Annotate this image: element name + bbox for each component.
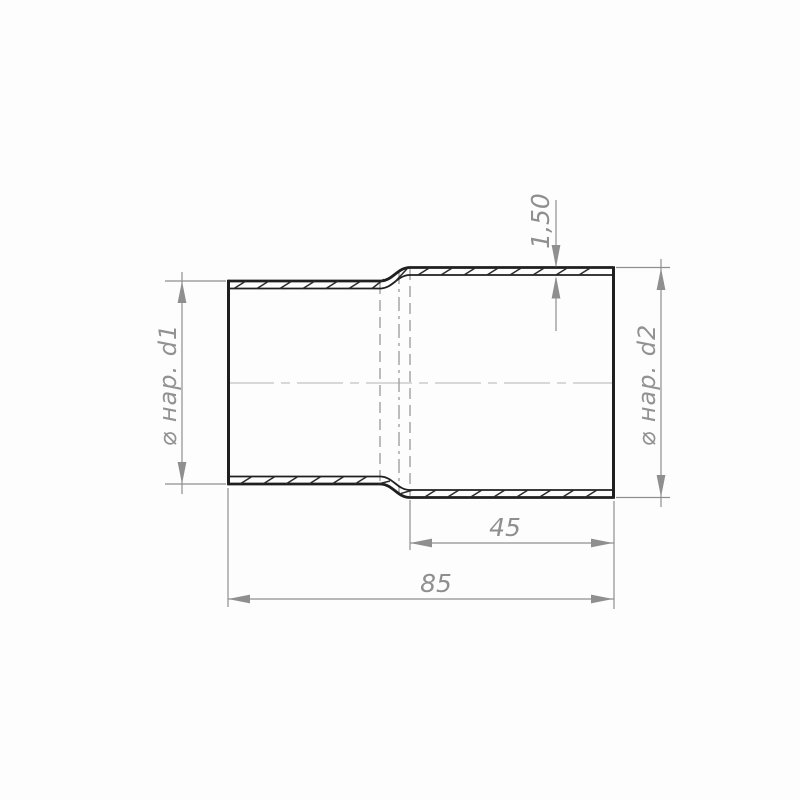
dimension-45: 45 bbox=[410, 500, 614, 550]
d2-label: ⌀ нар. d2 bbox=[633, 324, 661, 446]
d1-arrow-up-icon bbox=[178, 281, 187, 303]
top-wall-hatching bbox=[234, 268, 591, 289]
d1-arrow-down-icon bbox=[178, 462, 187, 484]
d2-arrow-up-icon bbox=[657, 268, 666, 290]
dim45-arrow-left-icon bbox=[410, 539, 432, 548]
dim85-arrow-left-icon bbox=[228, 595, 250, 604]
dim85-value: 85 bbox=[420, 569, 452, 598]
thickness-value: 1,50 bbox=[526, 193, 555, 249]
dim45-arrow-right-icon bbox=[591, 539, 613, 548]
dimension-d2: ⌀ нар. d2 bbox=[616, 259, 670, 507]
bottom-wall-hatching bbox=[240, 477, 597, 498]
d1-label: ⌀ нар. d1 bbox=[154, 324, 182, 446]
dim45-value: 45 bbox=[489, 513, 521, 542]
technical-drawing: ⌀ нар. d1 ⌀ нар. d2 1,50 45 85 bbox=[0, 0, 800, 800]
dimension-wall-thickness: 1,50 bbox=[526, 193, 560, 331]
dimension-85: 85 bbox=[228, 488, 614, 609]
dimension-d1: ⌀ нар. d1 bbox=[154, 272, 226, 494]
dim85-arrow-right-icon bbox=[591, 595, 613, 604]
drawing-page: ⌀ нар. d1 ⌀ нар. d2 1,50 45 85 bbox=[0, 0, 800, 800]
d2-arrow-down-icon bbox=[657, 475, 666, 497]
thickness-arrow-up-icon bbox=[552, 276, 561, 299]
